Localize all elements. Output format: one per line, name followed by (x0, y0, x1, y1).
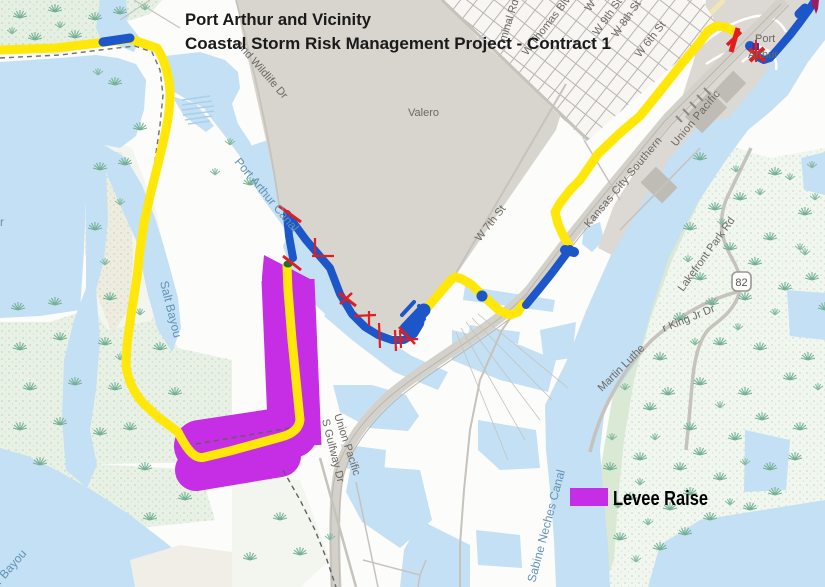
svg-text:82: 82 (735, 277, 747, 289)
svg-text:Levee Raise: Levee Raise (613, 488, 708, 510)
svg-text:Coastal Storm Risk Management: Coastal Storm Risk Management Project - … (185, 34, 611, 53)
svg-text:Arthur: Arthur (748, 49, 778, 61)
svg-text:Port: Port (755, 33, 775, 45)
svg-text:r: r (0, 215, 4, 229)
svg-text:Valero: Valero (408, 107, 439, 119)
svg-text:Port Arthur and Vicinity: Port Arthur and Vicinity (185, 10, 372, 29)
